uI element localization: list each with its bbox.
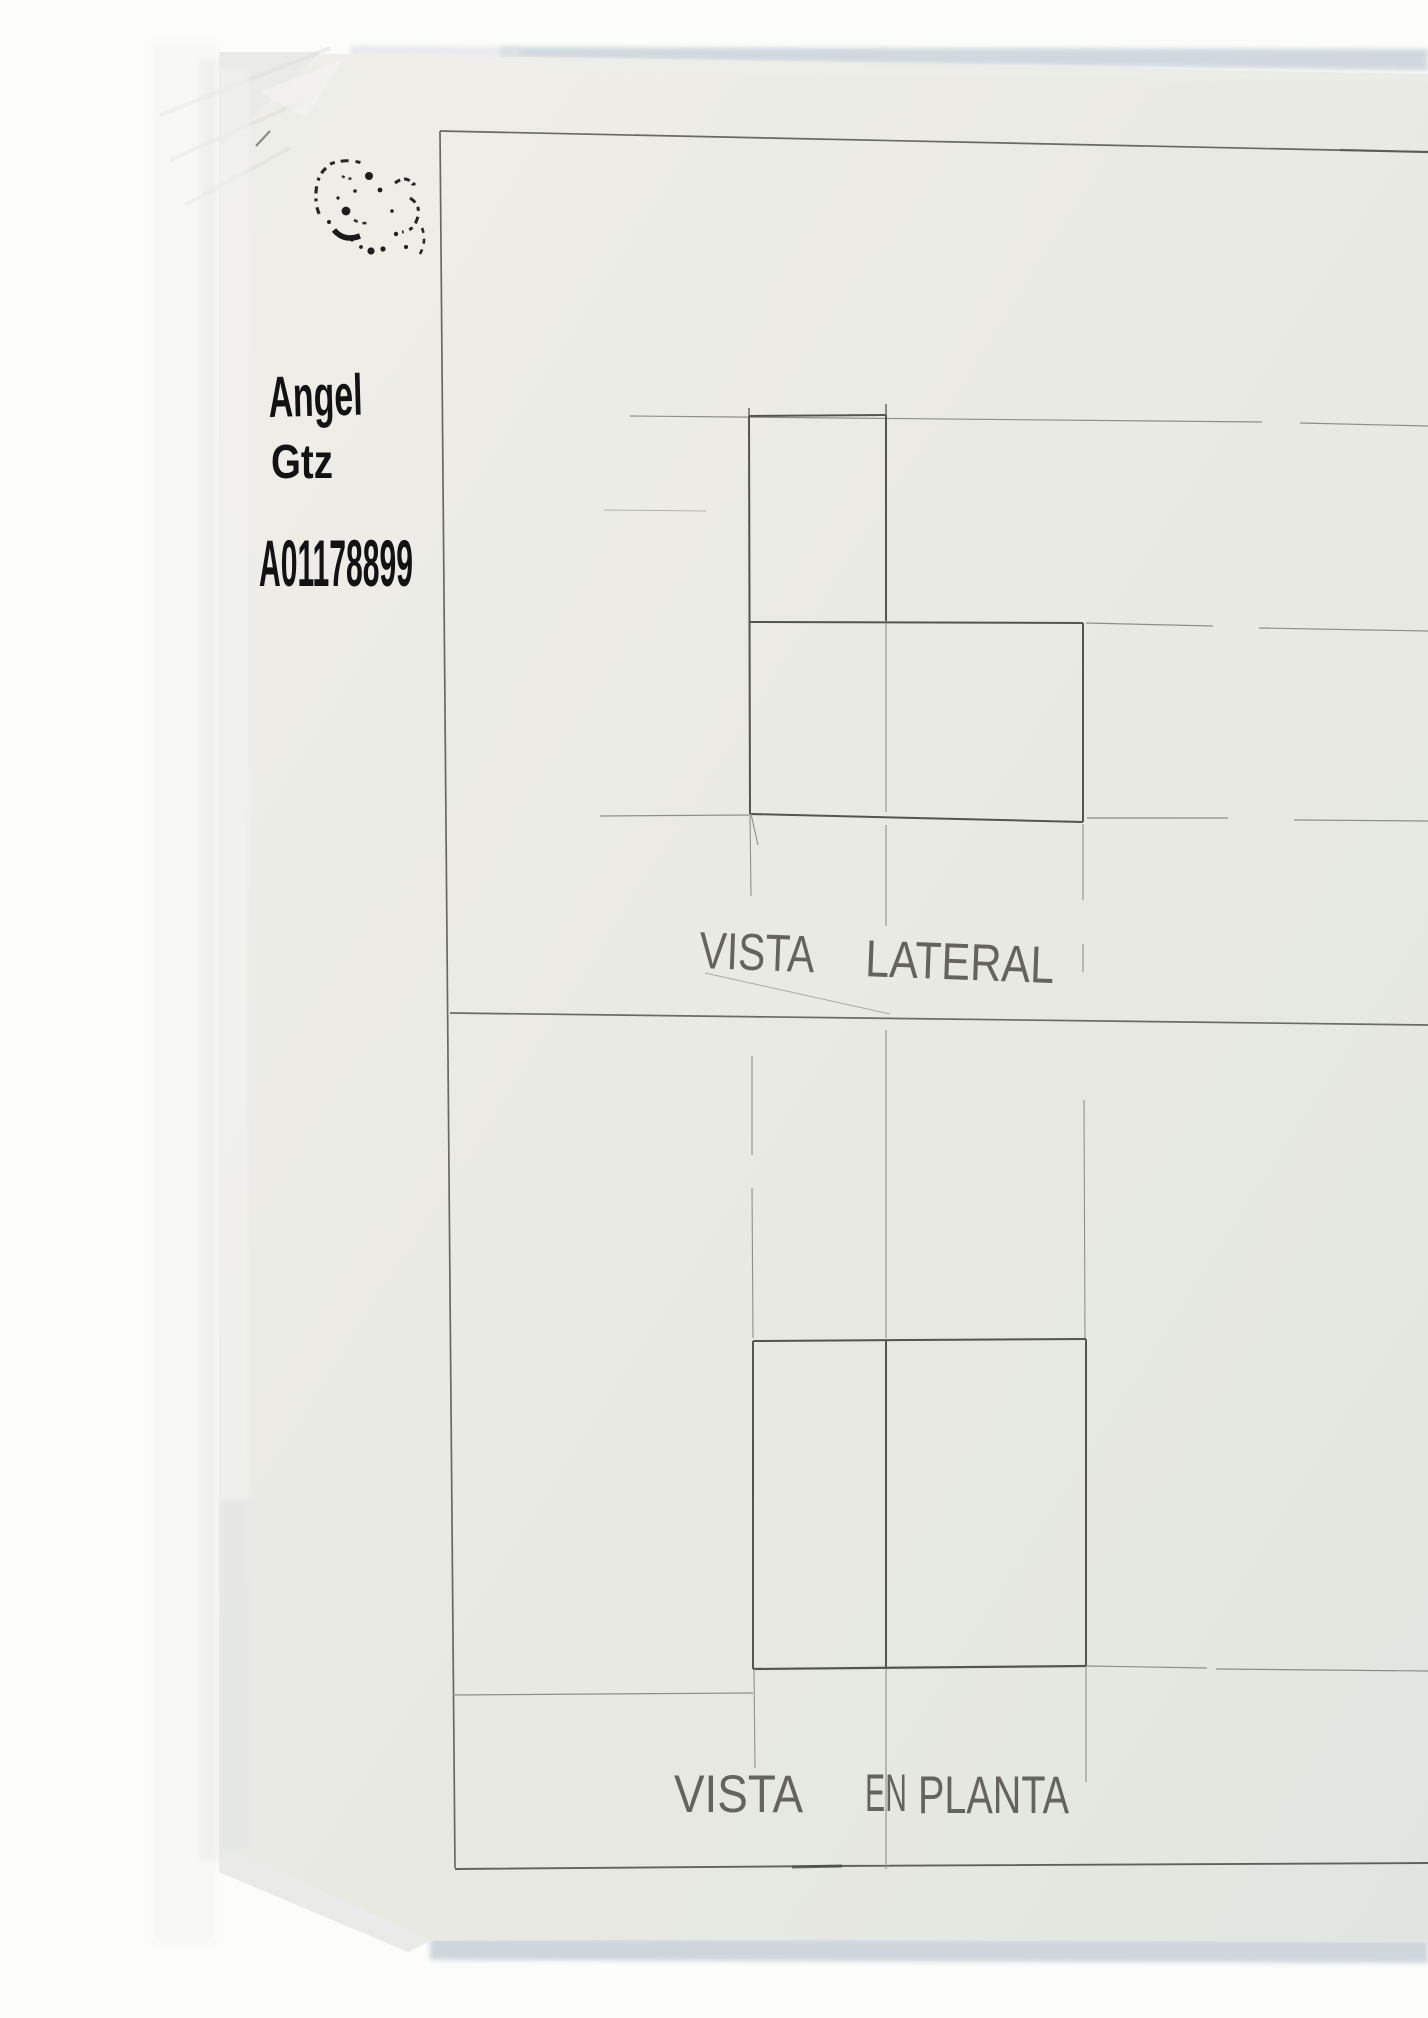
- svg-text:PLANTA: PLANTA: [918, 1766, 1069, 1825]
- svg-text:VISTA: VISTA: [674, 1765, 804, 1824]
- svg-text:Angel: Angel: [268, 363, 364, 430]
- svg-text:A01178899: A01178899: [259, 526, 413, 600]
- svg-text:VISTA: VISTA: [698, 922, 815, 984]
- svg-text:EN: EN: [865, 1764, 907, 1823]
- svg-text:LATERAL: LATERAL: [864, 930, 1055, 995]
- svg-text:Gtz: Gtz: [271, 436, 333, 489]
